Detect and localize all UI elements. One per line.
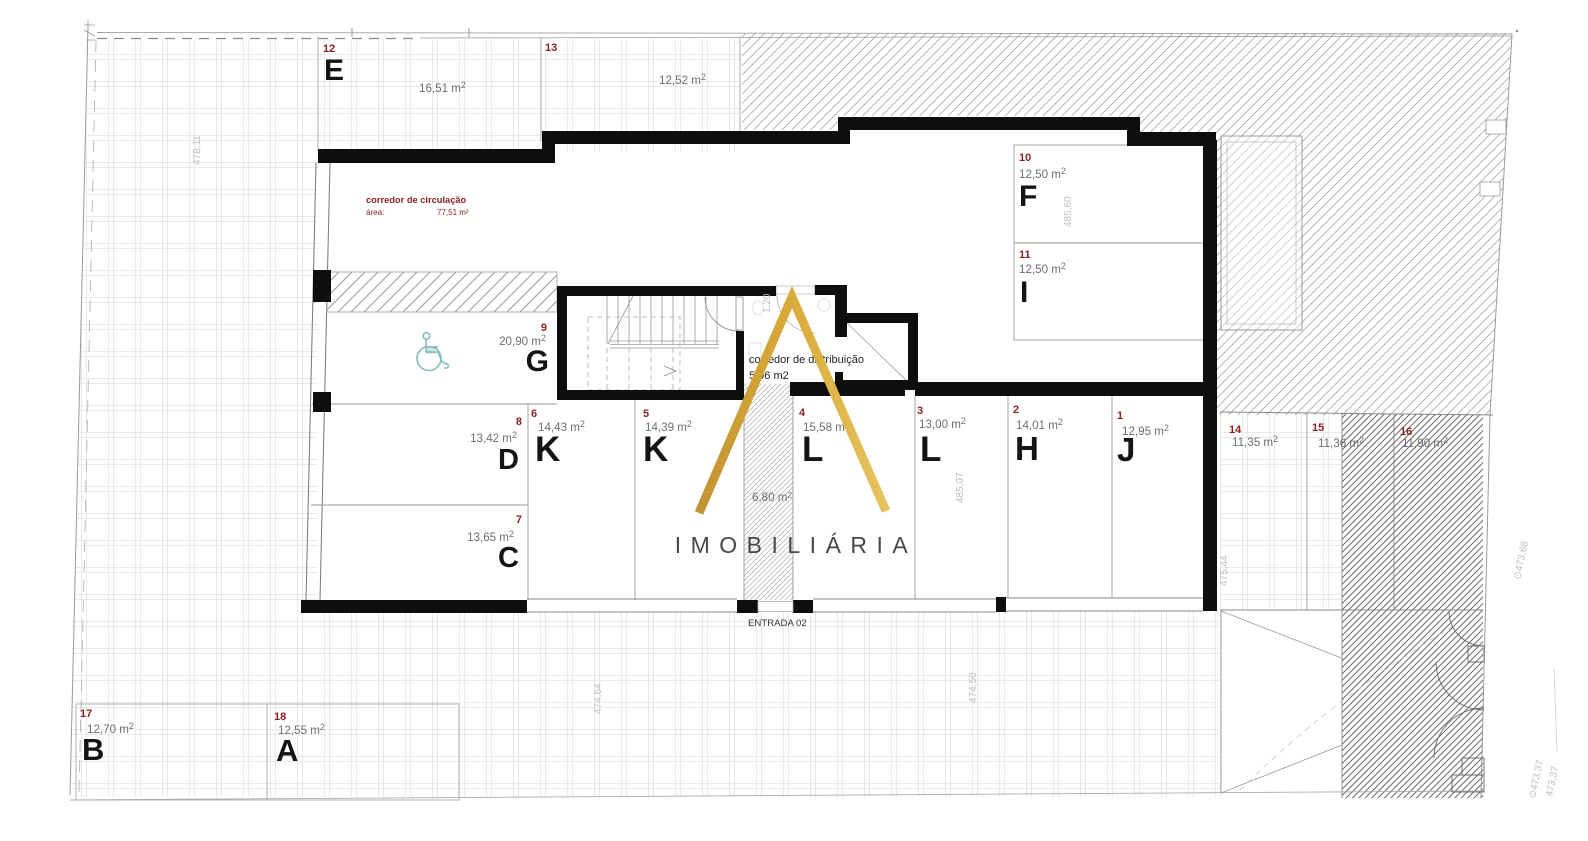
svg-text:15: 15 xyxy=(1312,422,1324,434)
svg-text:478,11: 478,11 xyxy=(192,135,203,165)
svg-text:18: 18 xyxy=(274,711,286,723)
svg-text:13: 13 xyxy=(545,42,557,54)
svg-text:4: 4 xyxy=(799,407,806,419)
svg-text:14: 14 xyxy=(1229,424,1242,436)
svg-text:K: K xyxy=(643,430,668,469)
svg-text:H: H xyxy=(1015,430,1039,467)
svg-text:2: 2 xyxy=(1013,404,1019,416)
svg-text:3: 3 xyxy=(917,405,923,417)
svg-text:7: 7 xyxy=(516,514,522,526)
svg-text:475,44: 475,44 xyxy=(1219,555,1230,586)
svg-text:C: C xyxy=(498,542,519,574)
svg-text:17: 17 xyxy=(80,708,92,720)
svg-text:6,80 m2: 6,80 m2 xyxy=(752,491,792,504)
svg-text:A: A xyxy=(276,733,298,768)
svg-text:13,42 m2: 13,42 m2 xyxy=(470,430,517,445)
svg-text:12,52 m2: 12,52 m2 xyxy=(659,72,706,87)
svg-text:K: K xyxy=(535,430,560,469)
svg-text:1,20: 1,20 xyxy=(762,293,773,313)
svg-text:12,50 m2: 12,50 m2 xyxy=(1019,261,1066,276)
svg-text:corredor de circulação: corredor de circulação xyxy=(366,195,467,205)
svg-text:77,51 m²: 77,51 m² xyxy=(437,208,469,217)
svg-text:13,00 m2: 13,00 m2 xyxy=(919,416,966,431)
svg-text:12,50 m2: 12,50 m2 xyxy=(1019,166,1066,181)
svg-text:B: B xyxy=(82,732,104,767)
svg-text:485,60: 485,60 xyxy=(1063,196,1074,227)
svg-text:474,64: 474,64 xyxy=(593,683,604,714)
svg-text:L: L xyxy=(802,430,823,469)
svg-text:11,90 m2: 11,90 m2 xyxy=(1402,435,1448,450)
svg-text:G: G xyxy=(526,345,549,378)
svg-text:L: L xyxy=(920,430,941,469)
svg-text:I: I xyxy=(1020,276,1028,309)
svg-text:11: 11 xyxy=(1019,249,1031,261)
svg-text:6: 6 xyxy=(531,408,537,420)
svg-text:11,36 m2: 11,36 m2 xyxy=(1318,435,1364,450)
svg-text:8: 8 xyxy=(516,416,522,428)
svg-text:E: E xyxy=(324,54,344,87)
svg-text:11,35 m2: 11,35 m2 xyxy=(1232,434,1278,449)
svg-text:ENTRADA 02: ENTRADA 02 xyxy=(748,618,807,629)
svg-text:10: 10 xyxy=(1019,152,1031,164)
svg-text:474,50: 474,50 xyxy=(968,672,979,703)
svg-text:485,07: 485,07 xyxy=(955,472,966,503)
svg-text:F: F xyxy=(1019,180,1037,213)
svg-text:IMOBILIÁRIA: IMOBILIÁRIA xyxy=(675,532,918,558)
svg-text:1: 1 xyxy=(1117,410,1123,422)
svg-text:área:: área: xyxy=(366,208,384,217)
svg-text:16,51 m2: 16,51 m2 xyxy=(419,80,466,95)
svg-text:D: D xyxy=(498,444,519,476)
svg-text:J: J xyxy=(1117,431,1135,468)
svg-text:5: 5 xyxy=(643,408,649,420)
